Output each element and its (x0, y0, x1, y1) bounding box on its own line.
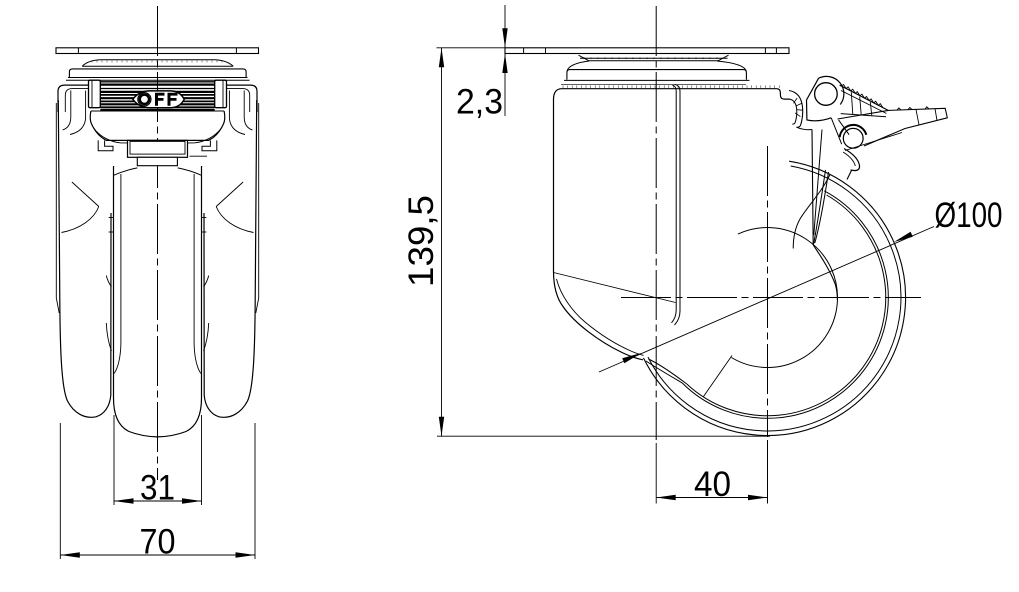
svg-text:Ø100: Ø100 (935, 196, 1003, 235)
svg-text:2,3: 2,3 (456, 83, 503, 122)
svg-text:40: 40 (694, 465, 731, 504)
svg-text:139,5: 139,5 (402, 195, 441, 287)
svg-text:70: 70 (140, 523, 176, 562)
svg-text:31: 31 (140, 469, 175, 508)
